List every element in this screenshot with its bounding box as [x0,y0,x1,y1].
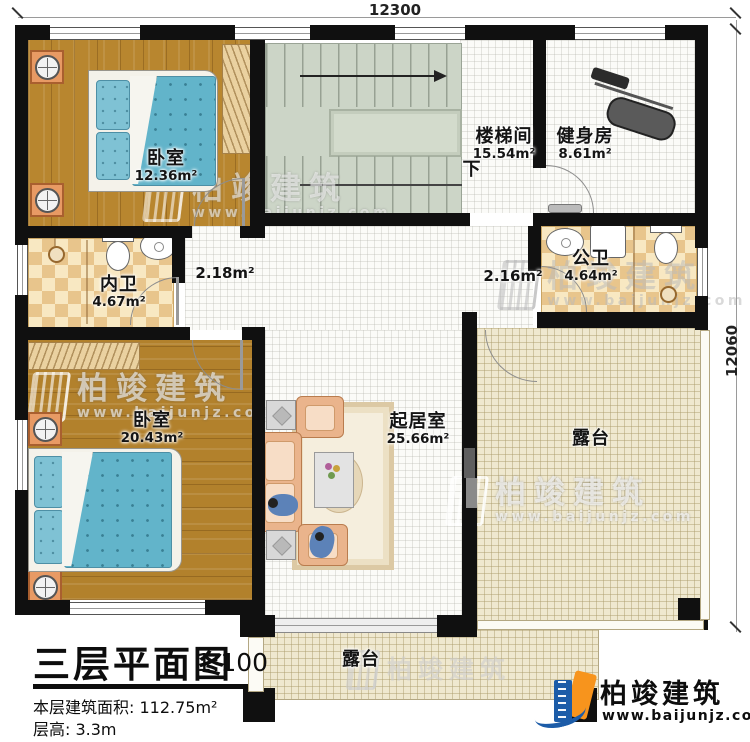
window [17,245,28,295]
lamp-icon [35,188,60,213]
room-label-bath-public: 公卫 4.64m² [564,250,617,284]
wall [310,25,395,40]
side-table [266,400,296,430]
cushion [265,441,295,481]
logo-company-name: 柏竣建筑 [600,672,724,711]
bath-partition [86,240,88,324]
toilet-bowl [106,241,130,271]
logo-website: www.baijunjz.com [602,708,750,724]
window [235,27,310,40]
person-head [315,532,324,541]
wall [528,226,541,271]
wardrobe [28,342,140,370]
wall [252,340,265,600]
nightstand [30,183,64,217]
room-label-terrace-right: 露台 [572,430,610,449]
room-label-stairwell: 楼梯间 15.54m² [473,128,536,162]
sliding-door [466,478,477,508]
pillow [34,456,64,508]
wardrobe [222,44,252,154]
stair-down-label: 下 [463,161,482,180]
window [50,27,140,40]
column [243,688,275,722]
shower-head-icon [48,246,65,263]
terrace-railing [700,330,710,620]
stair-direction-arrow-icon [434,70,447,82]
window [17,420,28,490]
wall [140,25,235,40]
wall [28,226,192,238]
floor-height-text: 层高: 3.3m [33,716,117,740]
wall [250,40,265,226]
wall [15,25,28,245]
pillow [96,80,130,130]
wall [250,213,470,226]
window [70,602,205,615]
wall [205,600,265,615]
stair-landing [329,109,462,157]
pillow [96,132,130,180]
armchair [296,396,344,438]
staircase [265,43,462,215]
terrace-railing [477,620,704,630]
room-label-bedroom2: 卧室 20.43m² [121,412,184,446]
room-label-gym: 健身房 8.61m² [557,128,614,162]
wall [465,25,575,40]
side-table [266,530,296,560]
lamp-icon [35,55,60,80]
wall [15,295,28,420]
window [395,27,465,40]
nightstand [28,570,62,604]
dimension-label-top: 12300 [369,1,421,19]
sliding-door [275,618,437,633]
window [697,248,708,296]
company-logo: 柏竣建筑 www.baijunjz.com [530,664,735,734]
hall-area-label: 2.16m² [483,268,542,285]
wall [240,615,275,637]
plan-scale: 1:100 [196,648,268,677]
wall [15,490,28,615]
bath-partition [633,226,635,312]
room-label-terrace-bottom: 露台 [342,651,380,670]
lamp-icon [33,575,58,600]
window [575,27,665,40]
wall [15,327,190,340]
cushion [305,405,335,431]
wall [15,600,70,615]
wall [240,226,265,238]
nightstand [30,50,64,84]
sliding-door [464,448,475,478]
hall-area-label: 2.18m² [195,265,254,282]
door-leaf [242,178,245,226]
floor-area-text: 本层建筑面积: 112.75m² [33,694,217,718]
room-label-bedroom1: 卧室 12.36m² [135,150,198,184]
coffee-table [314,452,354,508]
toilet-bowl [654,232,678,264]
title-underline [33,684,248,689]
wall [533,213,708,226]
person-head [268,498,278,508]
treadmill-belt [603,94,679,144]
door-leaf [176,277,179,325]
room-label-living: 起居室 25.66m² [387,413,450,447]
pillow [34,510,64,564]
wall [242,327,265,340]
stair-direction-line [300,75,434,77]
shower-head-icon [660,286,677,303]
room-label-bath-private: 内卫 4.67m² [92,276,145,310]
lamp-icon [33,417,58,442]
wall [437,615,477,637]
wall [537,312,708,328]
nightstand [28,412,62,446]
vase-flowers-icon [325,463,332,470]
door-leaf [240,340,243,390]
dimension-label-right: 12060 [723,321,741,381]
stair-down-line [300,184,462,186]
floor-plan-canvas: 柏竣建筑 www.baijunjz.com 柏竣建筑 www.baijunjz.… [0,0,750,742]
